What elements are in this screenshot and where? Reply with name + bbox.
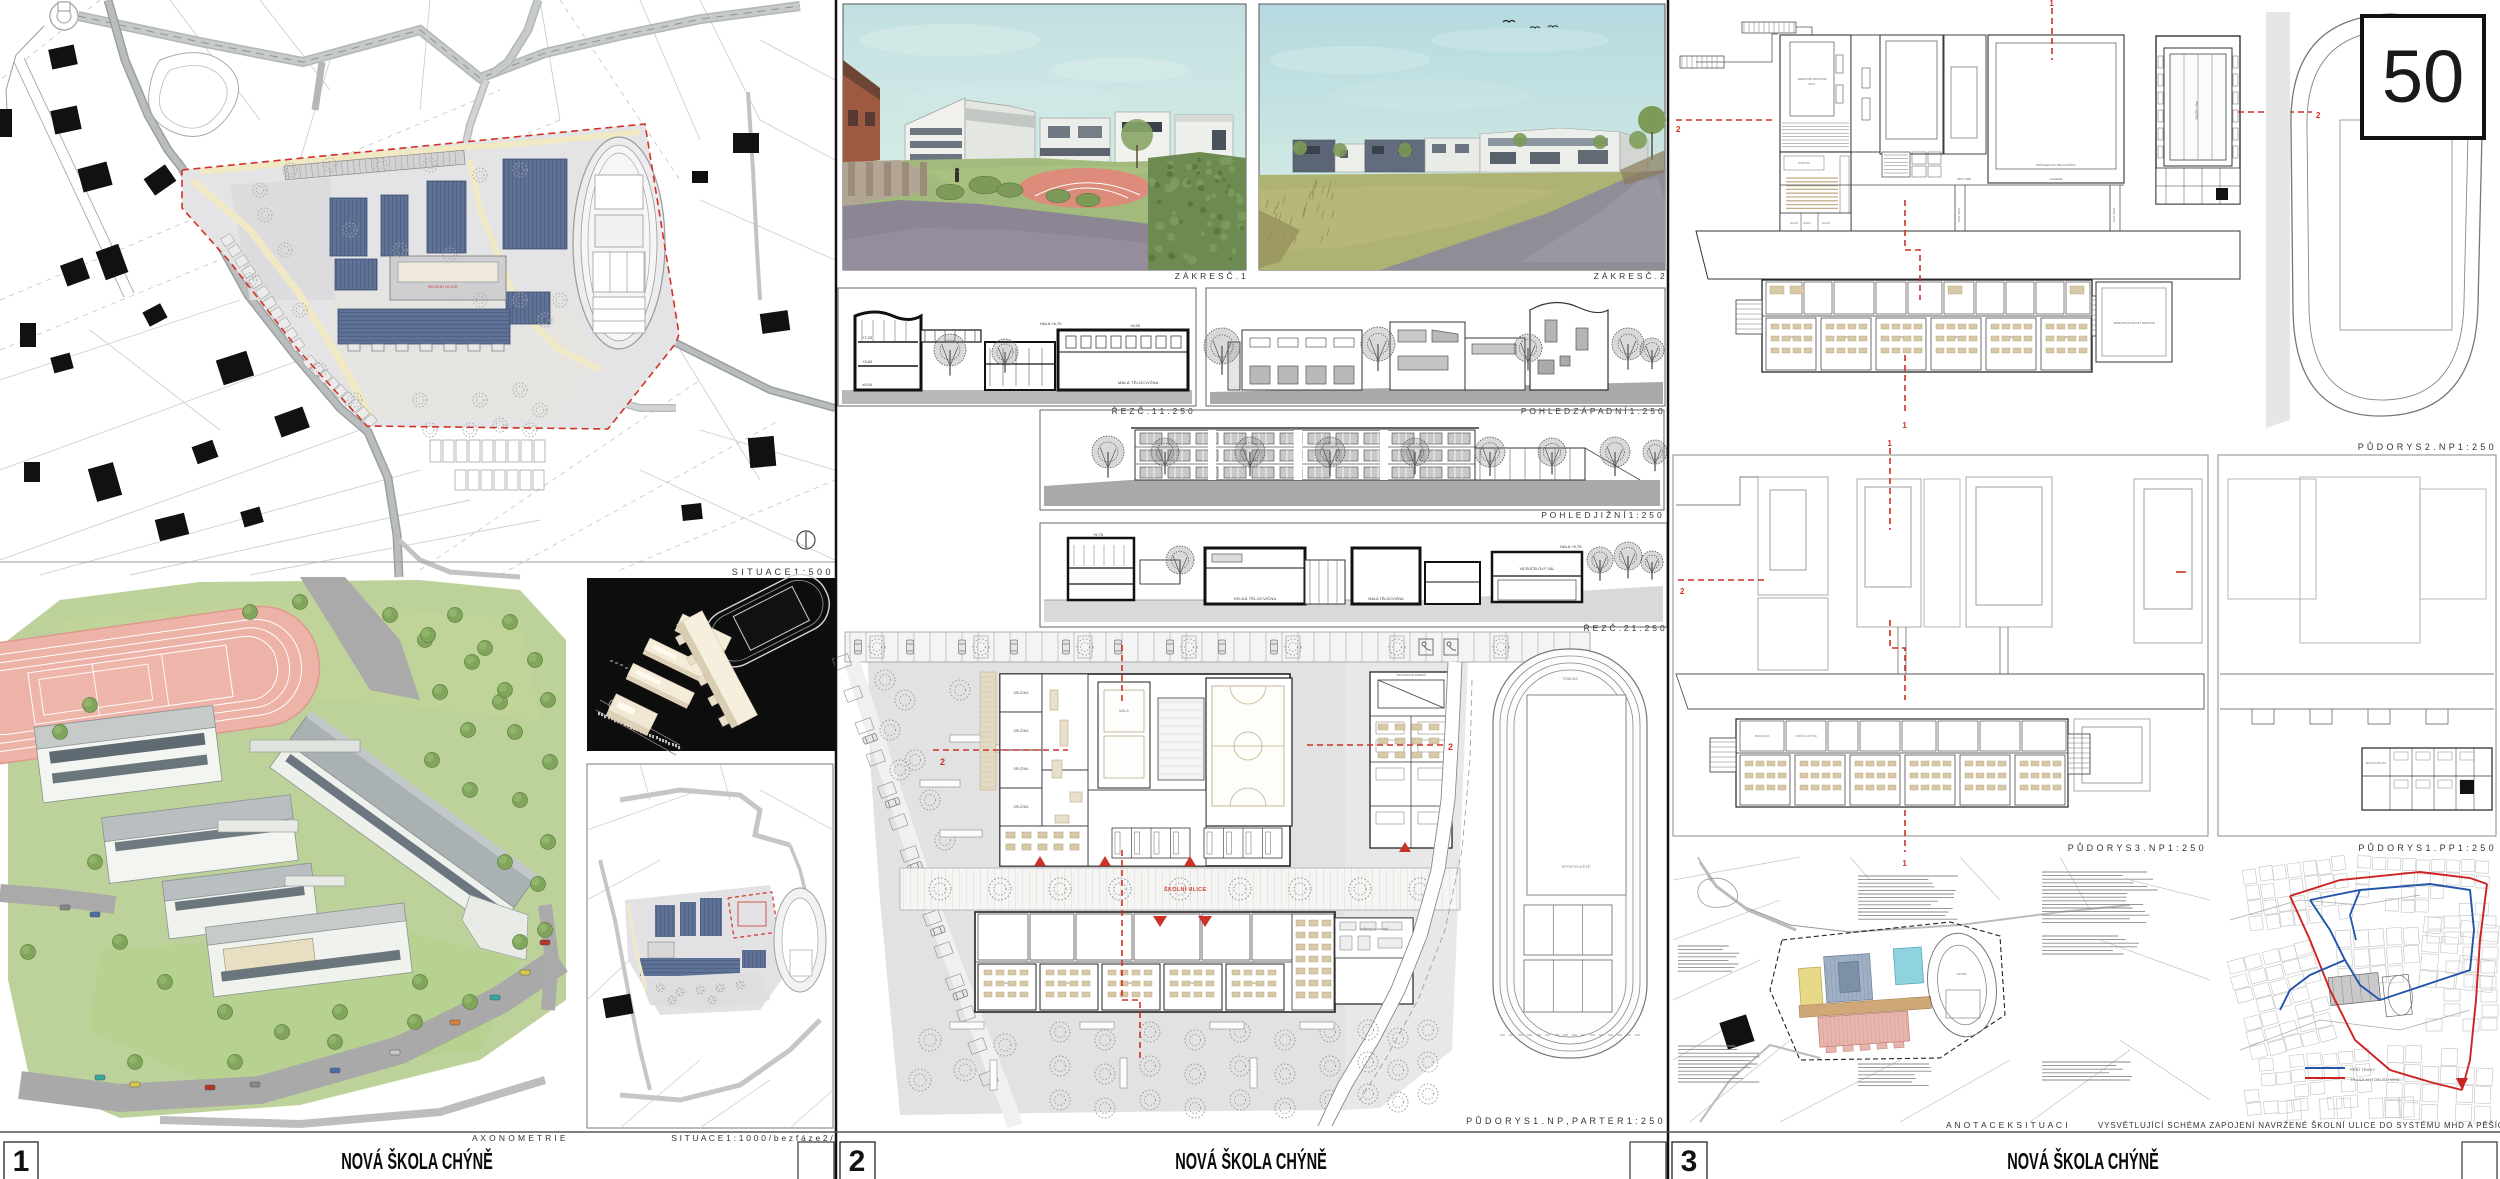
svg-text:P Ů D O R Y S 2 . N P: P Ů D O R Y S 2 . N P 1 : 2 5 0: [2358, 441, 2494, 452]
svg-text:1: 1: [1902, 859, 1907, 868]
svg-text:P O H L E D J I Ž N Í 1: P O H L E D J I Ž N Í 1 : 2 5 0: [1541, 510, 1662, 520]
svg-text:SKLAD: SKLAD: [1790, 222, 1798, 225]
svg-text:CVIČNÁ KUCHYNĚ: CVIČNÁ KUCHYNĚ: [1795, 735, 1817, 738]
svg-text:3: 3: [1681, 1145, 1698, 1178]
svg-text:A X O N O M E T R I E: A X O N O M E T R I E: [472, 1133, 566, 1143]
svg-text:S I T U A C E 1 : 5 0 0: S I T U A C E 1 : 5 0 0: [732, 567, 831, 577]
svg-text:SPOJ. MOST: SPOJ. MOST: [1958, 207, 1961, 222]
svg-text:1: 1: [1902, 421, 1907, 430]
svg-text:50: 50: [2382, 35, 2464, 118]
svg-text:PRŮHLED DO TĚLOCVIČNY: PRŮHLED DO TĚLOCVIČNY: [2036, 162, 2076, 167]
svg-text:2: 2: [849, 1145, 866, 1178]
svg-text:2: 2: [2316, 111, 2321, 120]
svg-text:SPOJ. MOST: SPOJ. MOST: [2113, 207, 2116, 222]
svg-text:AUDIO: AUDIO: [1803, 222, 1811, 225]
svg-text:SKLAD: SKLAD: [1822, 222, 1830, 225]
svg-text:PĚŠÍ TRASY: PĚŠÍ TRASY: [2350, 1067, 2376, 1072]
svg-text:2: 2: [1448, 742, 1454, 752]
svg-text:1: 1: [1887, 439, 1892, 448]
svg-text:NOVÁ ŠKOLA CHÝNĚ: NOVÁ ŠKOLA CHÝNĚ: [2007, 1146, 2159, 1175]
svg-text:TECHNICKÉ ZÁZEMÍ: TECHNICKÉ ZÁZEMÍ: [1396, 672, 1425, 677]
svg-text:DRUŽINA: DRUŽINA: [1014, 766, 1030, 771]
svg-text:+7,20: +7,20: [862, 335, 873, 340]
svg-text:GALERIE: GALERIE: [2049, 177, 2062, 181]
svg-text:AULY: AULY: [1808, 82, 1815, 86]
svg-text:SPORT.: SPORT.: [1957, 972, 1968, 976]
svg-text:HALA +6,70: HALA +6,70: [1040, 321, 1062, 326]
svg-text:VELKÁ TĚLOCVIČNA: VELKÁ TĚLOCVIČNA: [1234, 596, 1277, 601]
svg-text:2: 2: [1676, 125, 1681, 134]
svg-text:MALÁ TĚLOCVIČNA: MALÁ TĚLOCVIČNA: [1368, 596, 1404, 601]
svg-text:DRUŽINA: DRUŽINA: [1014, 728, 1030, 733]
svg-text:NOVÁ ŠKOLA CHÝNĚ: NOVÁ ŠKOLA CHÝNĚ: [1175, 1146, 1327, 1175]
svg-text:±0,00: ±0,00: [862, 382, 873, 387]
svg-text:2: 2: [1680, 587, 1685, 596]
svg-text:PRACOVNA: PRACOVNA: [1755, 734, 1770, 738]
svg-text:NOVÁ ŠKOLA CHÝNĚ: NOVÁ ŠKOLA CHÝNĚ: [341, 1146, 493, 1175]
svg-text:VENKOVNÍ PROSTOR: VENKOVNÍ PROSTOR: [1797, 77, 1826, 81]
svg-text:MALÁ: MALÁ: [1119, 709, 1129, 713]
svg-text:DRUŽINA: DRUŽINA: [1014, 690, 1030, 695]
svg-text:MALÁ TĚLOCVIČNA: MALÁ TĚLOCVIČNA: [1118, 380, 1159, 385]
svg-text:BAZÉN 25m: BAZÉN 25m: [2194, 100, 2199, 119]
svg-text:+6,00: +6,00: [1130, 323, 1141, 328]
svg-text:HALA +9,75: HALA +9,75: [1560, 544, 1582, 549]
svg-text:PODIUM: PODIUM: [1798, 161, 1810, 165]
svg-text:Z Á K R E S Č . 2: Z Á K R E S Č . 2: [1594, 271, 1665, 281]
svg-text:A N O T A C E K S I T U A: A N O T A C E K S I T U A C I: [1946, 1120, 2068, 1130]
svg-text:Z Á K R E S Č . 1: Z Á K R E S Č . 1: [1175, 271, 1246, 281]
svg-text:Ř E Z Č . 1 1 : 2 5 0: Ř E Z Č . 1 1 : 2 5 0: [1112, 406, 1193, 416]
svg-text:TRIBUNA: TRIBUNA: [1562, 677, 1578, 681]
svg-text:P Ů D O R Y S 3 . N P: P Ů D O R Y S 3 . N P 1 : 2 5 0: [2068, 842, 2204, 853]
svg-text:P Ů D O R Y S 1 . N P ,: P Ů D O R Y S 1 . N P , P A R T E R 1 : …: [1466, 1115, 1663, 1126]
svg-text:ŠKOLNÍ ULICE: ŠKOLNÍ ULICE: [1164, 885, 1206, 893]
svg-text:P O H L E D Z Á P A D N Í: P O H L E D Z Á P A D N Í 1 : 2 5 0: [1521, 406, 1663, 416]
svg-text:TRASA AUTOBUSU MHD: TRASA AUTOBUSU MHD: [2350, 1077, 2400, 1082]
svg-text:1: 1: [2049, 0, 2054, 8]
svg-text:+9,75: +9,75: [1093, 532, 1104, 537]
svg-text:VÍCEÚČELOVÝ SÁL: VÍCEÚČELOVÝ SÁL: [1520, 566, 1555, 571]
svg-text:2: 2: [940, 757, 946, 767]
svg-text:VENKOVNÍ ATLETICKÝ PROSTOR: VENKOVNÍ ATLETICKÝ PROSTOR: [2113, 321, 2155, 325]
svg-text:VYSVĚTLUJÍCÍ SCHÉMA ZAPOJENÍ N: VYSVĚTLUJÍCÍ SCHÉMA ZAPOJENÍ NAVRŽENÉ ŠK…: [2098, 1121, 2500, 1130]
svg-text:P Ů D O R Y S 1 . P P 1: P Ů D O R Y S 1 . P P 1 : 2 5 0: [2358, 842, 2494, 853]
svg-text:1: 1: [13, 1145, 30, 1178]
svg-text:ŠKOLNÍ ULICE: ŠKOLNÍ ULICE: [428, 284, 458, 289]
svg-text:SPOJ. 2080: SPOJ. 2080: [1957, 177, 1972, 181]
svg-text:+3,60: +3,60: [862, 359, 873, 364]
svg-text:SPORTOVIŠTĚ: SPORTOVIŠTĚ: [1562, 864, 1591, 869]
svg-text:STŘEDNÍ KUCHYNĚ: STŘEDNÍ KUCHYNĚ: [1360, 926, 1389, 931]
svg-text:DRUŽINA: DRUŽINA: [1014, 804, 1030, 809]
svg-text:Ř E Z Č . 2 1 : 2 5 0: Ř E Z Č . 2 1 : 2 5 0: [1584, 623, 1665, 633]
